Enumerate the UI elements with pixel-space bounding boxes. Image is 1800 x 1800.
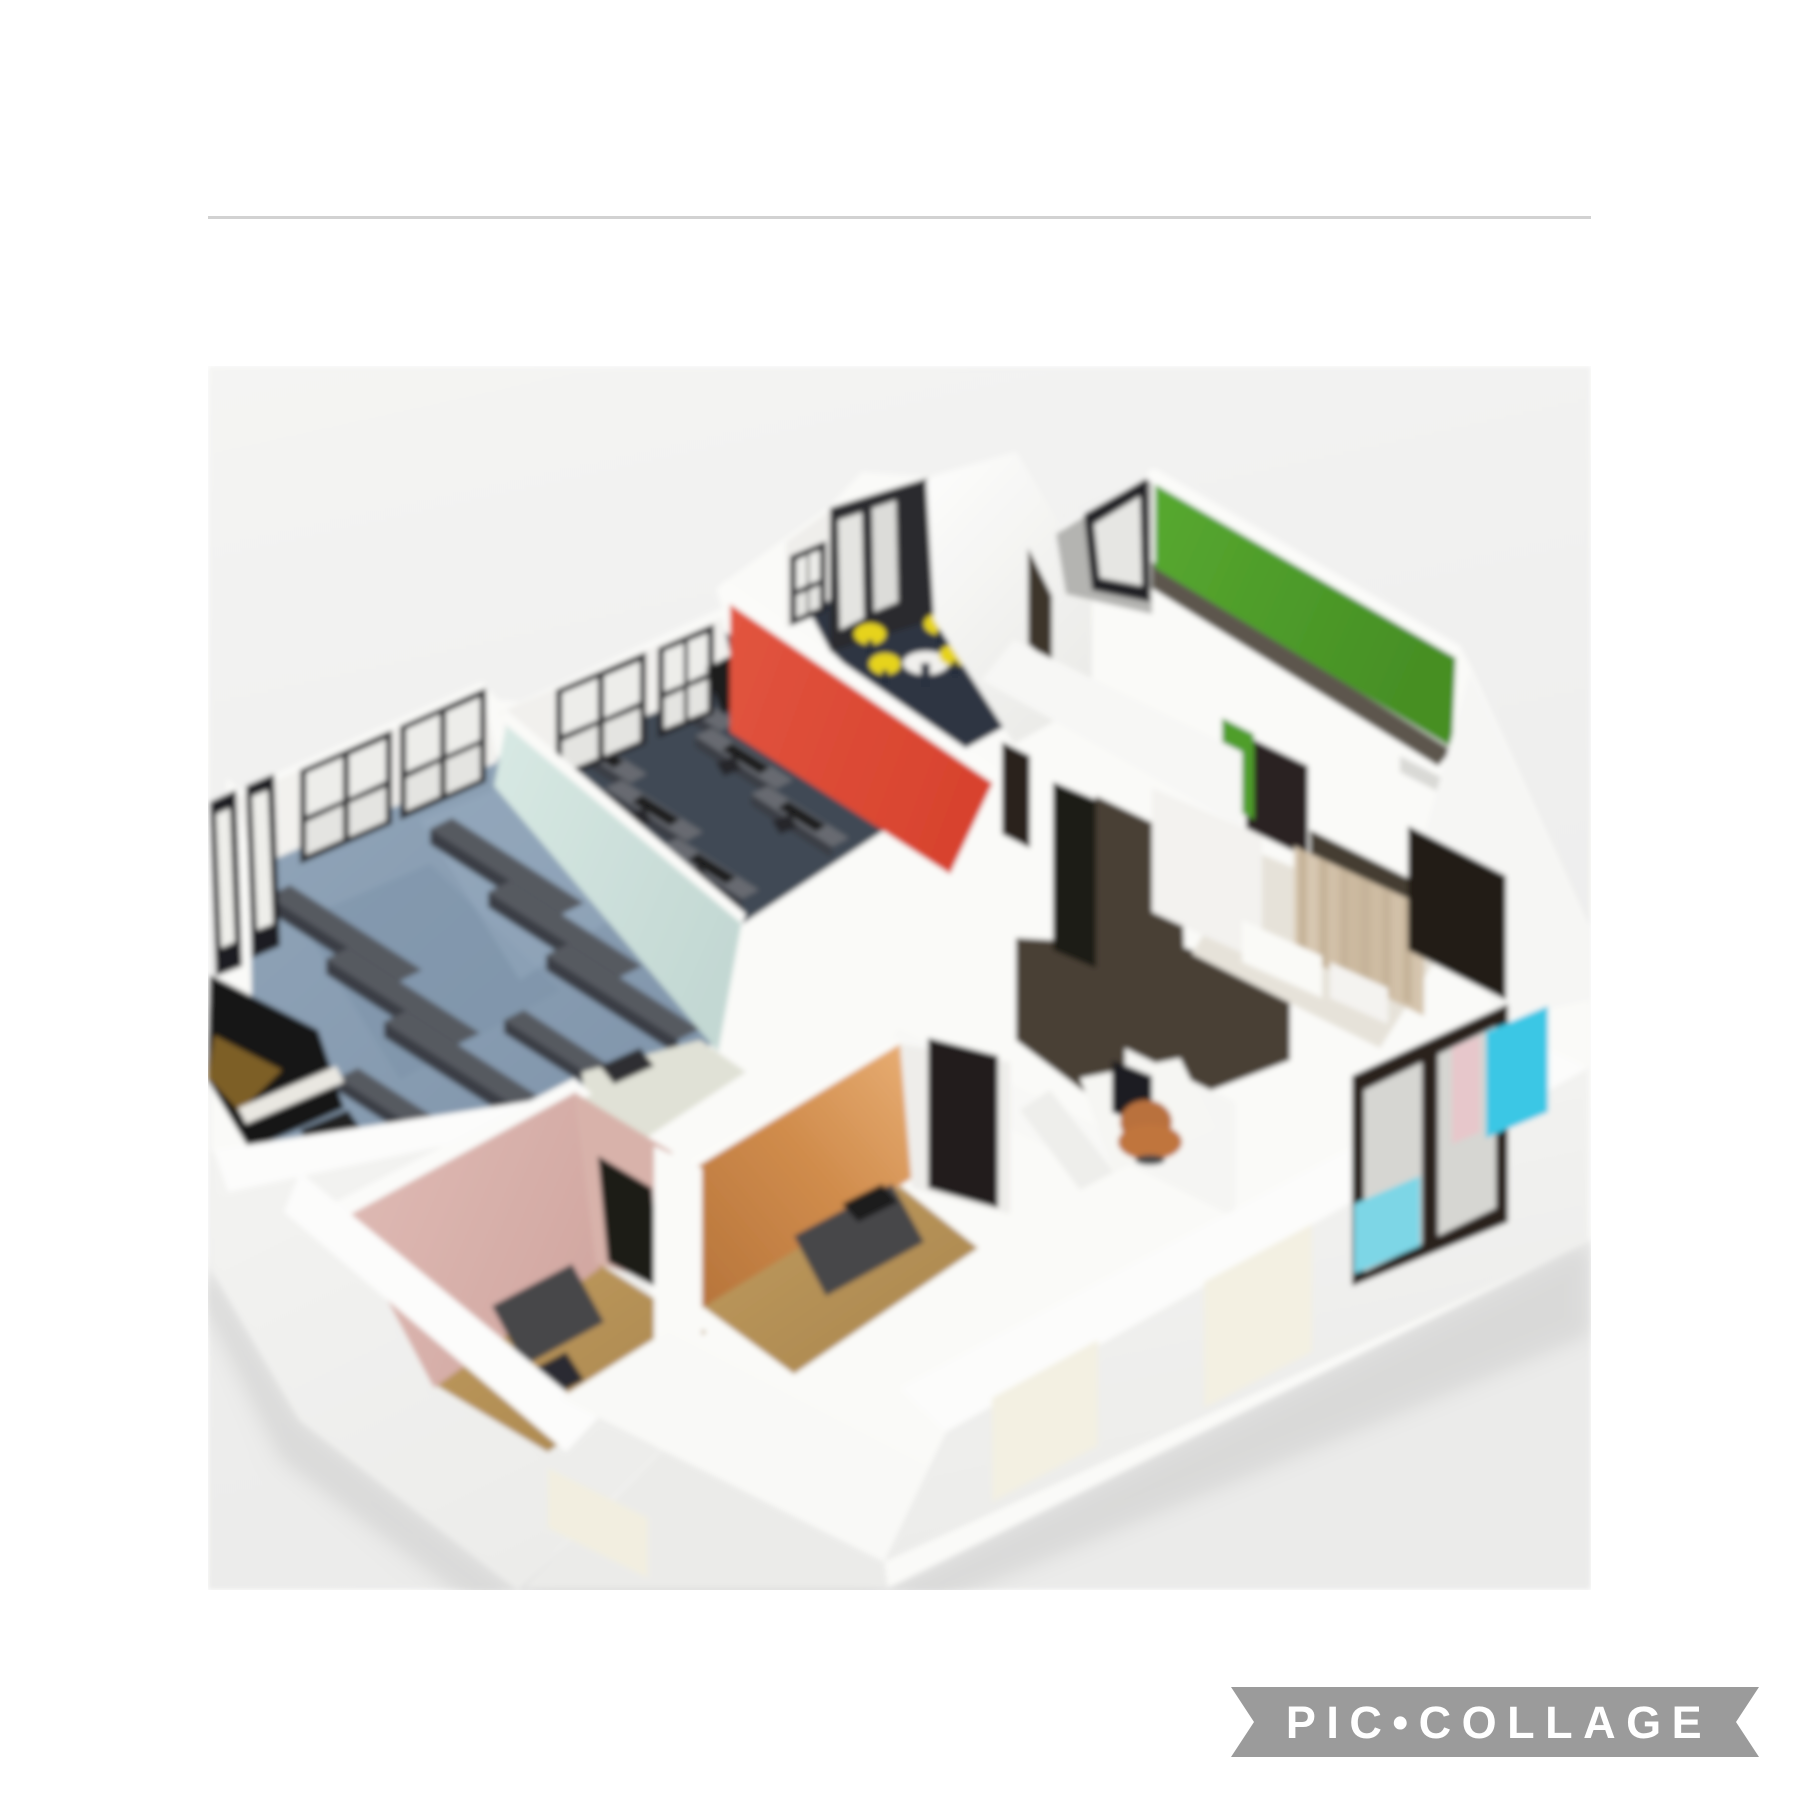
svg-text:PIC•COLLAGE: PIC•COLLAGE [1286,1697,1712,1748]
